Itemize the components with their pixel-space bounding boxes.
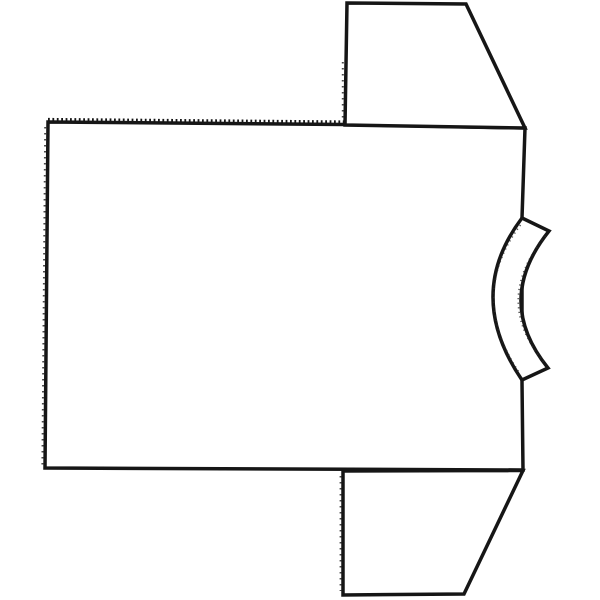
top-sleeve-shape — [345, 3, 525, 128]
bottom-sleeve-shape — [343, 471, 523, 596]
tshirt-pattern-drawing — [0, 0, 600, 600]
pattern-canvas — [0, 0, 600, 600]
shirt-body-shape — [45, 122, 525, 470]
